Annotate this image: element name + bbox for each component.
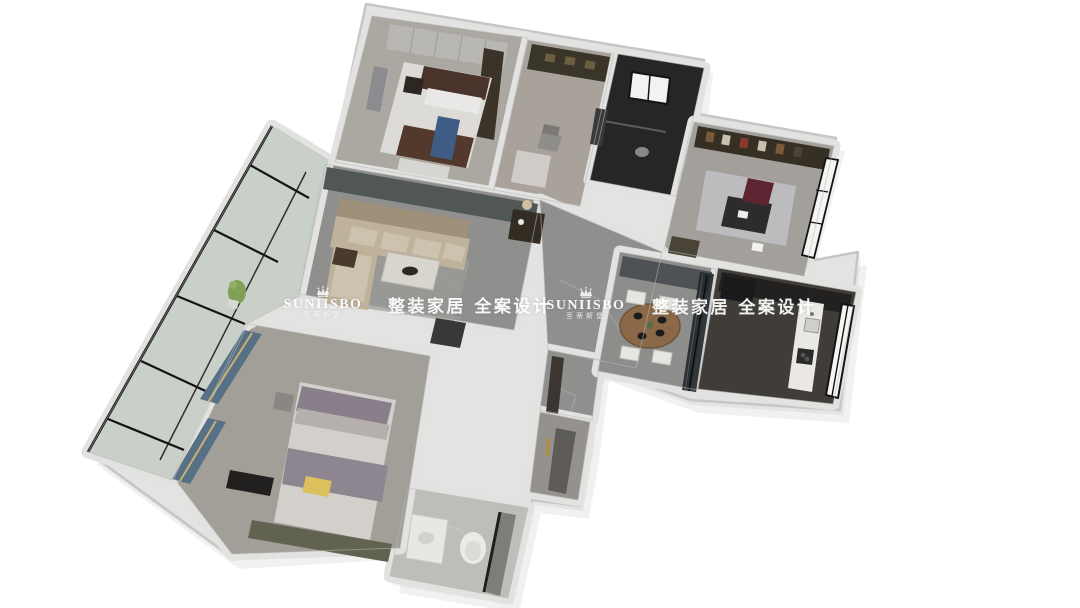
crown-icon	[578, 287, 594, 298]
crown-icon	[315, 286, 331, 297]
nightstand	[273, 392, 294, 412]
watermark-brand: SUNIISBO	[263, 298, 383, 311]
watermark-brand-block: SUNIISBO 圣蒂斯堡	[263, 286, 383, 319]
basin	[418, 532, 434, 544]
toilet	[635, 147, 649, 157]
toilet-seat	[465, 541, 481, 561]
watermark-brand-block: SUNIISBO 圣蒂斯堡	[526, 287, 646, 320]
vase	[518, 219, 524, 225]
sink	[804, 318, 820, 333]
rug	[511, 150, 551, 188]
watermark-slogan: 整装家居 全案设计	[652, 293, 816, 318]
watermark-brand: SUNIISBO	[526, 299, 646, 312]
watermark-brand-cn: 圣蒂斯堡	[263, 311, 383, 319]
console-table	[508, 209, 545, 244]
centerpiece	[647, 322, 654, 329]
pampas-decor	[522, 200, 532, 210]
gold-door-handle	[547, 438, 549, 456]
plant-leaf	[229, 281, 237, 289]
cooktop	[796, 348, 814, 365]
watermark-brand-cn: 圣蒂斯堡	[526, 312, 646, 320]
burner	[801, 353, 806, 358]
nightstand	[403, 76, 424, 95]
tray	[402, 267, 418, 276]
accent-chair	[430, 318, 466, 348]
burner	[805, 357, 810, 362]
